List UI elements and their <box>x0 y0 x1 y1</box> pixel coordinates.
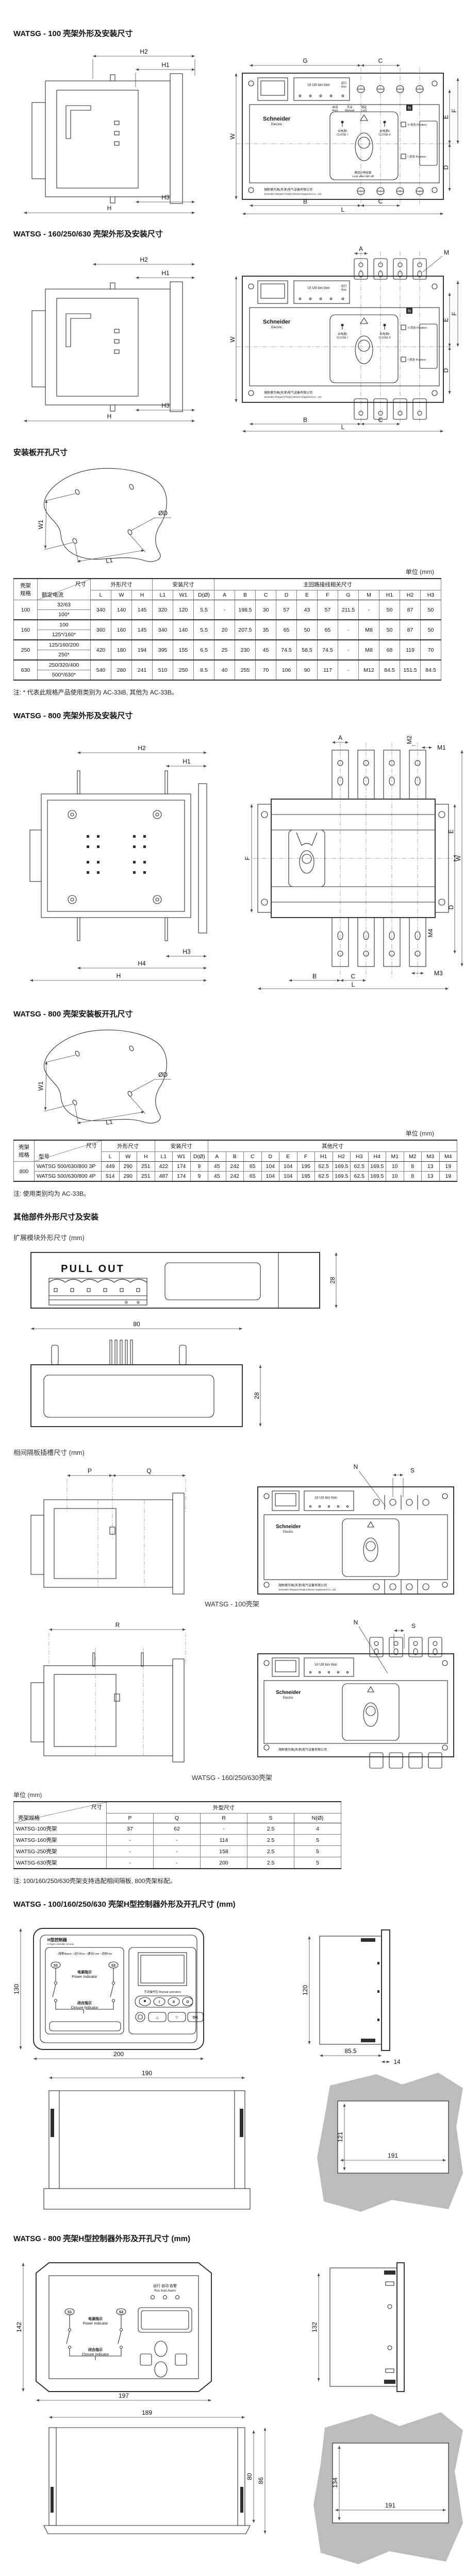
dim-b: B <box>303 198 307 205</box>
table-cell: 420 <box>91 640 111 660</box>
separator-side-view: P Q <box>31 1467 186 1594</box>
company-name-en: Schneider Wingoal (Tianjin) Electric Equ… <box>278 1588 336 1591</box>
table-cell: 9 <box>190 1162 208 1172</box>
table-header-cell: 其他尺寸 <box>208 1140 457 1152</box>
table-cell: M12 <box>359 660 379 680</box>
table-cell: 65 <box>244 1162 262 1172</box>
table-cell: 140 <box>173 620 194 640</box>
top-terminals <box>357 86 423 93</box>
table-cell: 50 <box>379 600 400 620</box>
dim-c-bottom: C <box>378 198 383 205</box>
closure-indicator-cn: 闭合指示 <box>77 2001 92 2005</box>
dim-c-top: C <box>378 57 383 64</box>
dim-86: 86 <box>257 2477 264 2484</box>
table-cell: - <box>338 660 359 680</box>
section-title-watsg800-plate: WATSG - 800 壳架安装板开孔尺寸 <box>13 1008 464 1019</box>
table-header-cell: C <box>256 590 276 600</box>
table-cell: 62.5 <box>315 1162 333 1172</box>
rated-current-cell: 32/63 <box>38 600 91 610</box>
dim-28: 28 <box>329 1277 336 1284</box>
dim-w1: W1 <box>37 1081 44 1091</box>
table-header-cell: D(Ø) <box>194 590 214 600</box>
caption-watsg160-frame: WATSG - 160/250/630壳架 <box>0 1772 464 1782</box>
table-cell: 43 <box>297 600 318 620</box>
diag-top-label: 尺寸 <box>91 1803 102 1811</box>
power-indicator-cn: 电源指示 <box>77 1970 92 1974</box>
table-cell: 242 <box>226 1172 244 1182</box>
table-cell: 45 <box>208 1162 226 1172</box>
top-busbars <box>332 750 426 799</box>
dim-h3: H3 <box>161 402 170 409</box>
subsection-expansion-module: 扩展模块外形尺寸 (mm) <box>13 1232 464 1242</box>
table-frame-800-dimensions: 壳架 规格尺寸型号外形尺寸安装尺寸其他尺寸LWHL1W1D(Ø)ABCDEFH1… <box>13 1140 457 1182</box>
table-cell: 5 <box>294 1857 341 1869</box>
table-header-cell: C <box>244 1152 262 1162</box>
dim-h2: H2 <box>140 256 148 263</box>
button-II: II <box>173 2001 175 2004</box>
dim-h2: H2 <box>138 744 146 752</box>
panel-cutout: 134 191 <box>313 2412 463 2564</box>
table-header-cell: L1 <box>153 590 173 600</box>
company-name-en: Schneider Wingoal (Tianjin) Electric Equ… <box>264 396 322 398</box>
table-cell: - <box>107 1857 154 1869</box>
dim-m: M <box>444 249 449 256</box>
dim-d: D <box>448 905 455 909</box>
table-cell: 5 <box>294 1846 341 1857</box>
table-header-cell: A <box>214 590 235 600</box>
led-panel-labels: UI UII Ion IIon <box>307 286 329 290</box>
separator-front-view: N S UI UII Ion IIon Schneider Electric 施… <box>258 1619 454 1768</box>
table-cell: 19 <box>439 1172 457 1182</box>
controller-title-cn: H型控制器 <box>47 1937 68 1942</box>
rated-current-cell: 100 <box>38 620 91 630</box>
table-header-cell: D(Ø) <box>190 1152 208 1162</box>
button-O: O <box>186 2001 189 2004</box>
dim-190: 190 <box>142 2070 152 2077</box>
diag-top-label: 尺寸 <box>86 1142 97 1149</box>
figure-h-controller-small: H型控制器 H Type Controller ACxxxx ○报警Alarm … <box>0 1916 464 2065</box>
controller800-bottom-view: 189 80 86 <box>44 2409 265 2534</box>
power-indicator-en: Power Indicator <box>83 2322 108 2326</box>
table-cell: 169.5 <box>333 1172 351 1182</box>
figure-watsg160-outline: H2 H1 H3 H UI UII Ion IIon 运行 Run <box>0 245 464 433</box>
dim-130: 130 <box>13 1984 20 1994</box>
table-separator-dimensions: 尺寸壳架规格外型尺寸PQRSN(Ø)WATSG-100壳架3762-2.54WA… <box>13 1801 341 1869</box>
table-cell: 6.5 <box>194 640 214 660</box>
table-cell: 8 <box>404 1172 422 1182</box>
table-header-cell: H1 <box>379 590 400 600</box>
brand-logo-sub: Electric <box>271 123 283 126</box>
table-cell: 87 <box>400 620 421 640</box>
table-cell: 211.5 <box>338 600 359 620</box>
dim-l: L <box>341 423 345 431</box>
table-cell: 19 <box>439 1162 457 1172</box>
section-title-watsg800: WATSG - 800 壳架外形及安装尺寸 <box>13 710 464 721</box>
table-cell: 87 <box>400 600 421 620</box>
frame-spec-cell: WATSG-250壳架 <box>14 1846 107 1857</box>
led-panel-labels: UI UII Ion IIon <box>314 1663 337 1667</box>
controller800-side-view: 132 <box>311 2263 404 2392</box>
table-cell: 290 <box>119 1172 137 1182</box>
table-header-cell: L <box>102 1152 120 1162</box>
table-cell: 90 <box>297 660 318 680</box>
s1-label: S1 <box>54 1964 58 1968</box>
table-cell: M8 <box>359 620 379 640</box>
table-cell: 360 <box>91 620 111 640</box>
dim-80: 80 <box>133 1320 140 1328</box>
table-cell: 25 <box>214 640 235 660</box>
s2-label: S2 <box>111 1964 116 1968</box>
table-cell: 30 <box>256 600 276 620</box>
table-cell: 5.5 <box>194 620 214 640</box>
table-header-cell: S <box>247 1814 294 1823</box>
leds800-cn: 运行 自动 告警 <box>153 2283 177 2288</box>
table-cell: 120 <box>173 600 194 620</box>
dim-189: 189 <box>142 2409 152 2416</box>
table-cell: 449 <box>102 1162 120 1172</box>
table-cell: 395 <box>153 640 173 660</box>
table-cell: 5 <box>294 1835 341 1846</box>
dim-h: H <box>107 205 112 212</box>
table-cell: 2.5 <box>247 1823 294 1835</box>
table-cell: 280 <box>111 660 132 680</box>
table-cell: 117 <box>318 660 338 680</box>
table-cell: 195 <box>297 1162 315 1172</box>
rated-current-cell: 500*/630* <box>38 670 91 681</box>
table-header-cell: 壳架 规格 <box>14 579 38 600</box>
dim-d: D <box>442 368 450 372</box>
auto-label-cn: 自动 <box>332 105 338 109</box>
button-up-icon: △ <box>156 2016 159 2020</box>
dim-85-5: 85.5 <box>344 2047 357 2055</box>
table-cell: 230 <box>235 640 256 660</box>
table-header-cell: M3 <box>422 1152 440 1162</box>
table-header-cell: E <box>279 1152 297 1162</box>
table-header-cell: H3 <box>421 590 441 600</box>
dim-191: 191 <box>385 2502 395 2509</box>
dim-h1: H1 <box>161 269 170 277</box>
section-title-h-controller-small: WATSG - 100/160/250/630 壳架H型控制器外形及开孔尺寸 (… <box>13 1899 464 1909</box>
table-header-cell: F <box>318 590 338 600</box>
nav-buttons <box>140 2341 187 2377</box>
table-cell: 106 <box>276 660 297 680</box>
lock-note-en: Lock after I&II off <box>352 175 374 178</box>
company-name-cn: 施耐德万高(天津)电气设备有限公司 <box>264 188 312 192</box>
table-header-cell: M1 <box>386 1152 404 1162</box>
frame-spec-cell: WATSG-160壳架 <box>14 1835 107 1846</box>
warning-triangle-icon <box>360 318 368 324</box>
table-header-cell: N(Ø) <box>294 1814 341 1823</box>
dim-e: E <box>442 318 450 322</box>
frame-spec-cell: 630 <box>14 660 38 680</box>
table-cell: 155 <box>173 640 194 660</box>
table-cell: 242 <box>226 1162 244 1172</box>
frame-spec-cell: 250 <box>14 640 38 660</box>
table-cell: 320 <box>153 600 173 620</box>
dim-191: 191 <box>388 2152 398 2159</box>
note-ac33b: 注: 使用类别均为 AC-33B。 <box>13 1189 464 1198</box>
table-cell: 251 <box>137 1162 155 1172</box>
figure-expansion-module-top: 80 28 <box>0 1318 361 1437</box>
close2-label-en: CLOSE II <box>378 336 391 340</box>
dim-h1: H1 <box>183 758 191 765</box>
dim-s: S <box>410 1467 415 1474</box>
table-cell: 50 <box>421 600 441 620</box>
dim-200: 200 <box>113 2050 124 2058</box>
manual-label-cn: 手动 <box>346 105 353 109</box>
brand-logo-sub: Electric <box>283 1531 293 1534</box>
table-cell: 104 <box>261 1162 279 1172</box>
close1-label-en: CLOSE I <box>337 336 348 340</box>
dim-l: L <box>352 981 355 988</box>
table-cell: 10 <box>386 1172 404 1182</box>
run-label-cn: 运行 <box>341 81 347 85</box>
table-cell: - <box>107 1835 154 1846</box>
dim-m4: M4 <box>427 928 434 937</box>
neutral-pole-marker: N <box>408 106 411 111</box>
table-cell: 180 <box>111 640 132 660</box>
table-cell: - <box>214 600 235 620</box>
diagonal-header-cell: 尺寸型号 <box>35 1140 102 1162</box>
table-cell: - <box>338 620 359 640</box>
watsg800-front-view: A M2 M1 F E W D M4 M3 B C L <box>244 734 462 989</box>
table-header-cell: 外型尺寸 <box>107 1802 341 1814</box>
table-header-cell: A <box>208 1152 226 1162</box>
watsg800-side-view: H2 H1 H3 H4 H <box>30 744 207 980</box>
connector-cluster <box>87 835 146 874</box>
table-cell: 62.5 <box>351 1162 369 1172</box>
diag-top-label: 尺寸 <box>75 580 86 588</box>
table-header-cell: M <box>359 590 379 600</box>
table-header-cell: W <box>111 590 132 600</box>
table-cell: 169.5 <box>368 1172 386 1182</box>
led-panel-labels: UI UII Ion IIon <box>314 1496 337 1500</box>
table-cell: 20 <box>214 620 235 640</box>
table-cell: - <box>107 1846 154 1857</box>
table-cell: 50 <box>379 620 400 640</box>
table-header-cell: H2 <box>400 590 421 600</box>
s2-label: S2 <box>119 2311 124 2314</box>
dim-a: A <box>338 734 342 741</box>
controller-front-view: H型控制器 H Type Controller ACxxxx ○报警Alarm … <box>13 1928 204 2059</box>
caption-watsg100-frame: WATSG - 100壳架 <box>0 1599 464 1608</box>
table-header-cell: G <box>338 590 359 600</box>
dim-m2: M2 <box>406 735 413 744</box>
model-cell: WATSG 500/630/800 4P <box>35 1172 102 1182</box>
table-header-cell: E <box>297 590 318 600</box>
table-header-cell: Q <box>154 1814 201 1823</box>
table-cell: - <box>201 1823 247 1835</box>
figure-h-controller-small-cutout: 190 121 191 <box>0 2065 464 2219</box>
separator-front-view: N S UI UII Ion IIon Schneider Electric 施… <box>258 1463 454 1594</box>
pull-out-label: PULL OUT <box>61 1263 125 1275</box>
table-cell: - <box>154 1835 201 1846</box>
dim-w: W <box>229 133 236 140</box>
dim-h: H <box>107 413 112 420</box>
dim-14: 14 <box>393 2058 401 2065</box>
dim-m3: M3 <box>434 970 443 977</box>
table-cell: 9 <box>190 1172 208 1182</box>
table-header-cell: H2 <box>333 1152 351 1162</box>
mounting-plate-blob: W1 L1 ØD <box>37 1030 171 1126</box>
table-cell: 487 <box>155 1172 173 1182</box>
diag-bottom-label: 额定电流 <box>42 591 63 599</box>
figure-separator-watsg160: R N S UI UII Ion IIon Schneider Electric <box>0 1617 464 1771</box>
table-cell: - <box>154 1857 201 1869</box>
bottom-terminal-lugs <box>370 1753 442 1768</box>
table-cell: 174 <box>173 1162 191 1172</box>
dim-121: 121 <box>337 2132 344 2142</box>
figure-expansion-module-front: PULL OUT 28 <box>0 1246 361 1313</box>
table-cell: 45 <box>256 640 276 660</box>
closure-indicator-cn: 闭合指示 <box>88 2347 103 2352</box>
table-header-cell: B <box>235 590 256 600</box>
table-cell: 340 <box>91 600 111 620</box>
table-cell: 340 <box>153 620 173 640</box>
table-header-cell: H1 <box>315 1152 333 1162</box>
table-cell: 169.5 <box>368 1162 386 1172</box>
dim-c: C <box>351 973 356 980</box>
table-cell: 104 <box>261 1172 279 1182</box>
table-cell: 2.5 <box>247 1857 294 1869</box>
led-panel-labels: UI UII Ion IIon <box>307 83 329 87</box>
diagonal-header-cell: 尺寸额定电流 <box>38 579 91 600</box>
table-cell: 169.5 <box>333 1162 351 1172</box>
table-header-cell: 主回路接线相关尺寸 <box>214 579 441 590</box>
table-cell: 50 <box>421 620 441 640</box>
table-cell: - <box>359 600 379 620</box>
separator-side-view: R <box>31 1621 186 1762</box>
brand-logo: Schneider <box>263 116 291 122</box>
table-cell: 104 <box>279 1172 297 1182</box>
table-cell: 8.5 <box>194 660 214 680</box>
dim-142: 142 <box>15 2322 23 2332</box>
s1-label: S1 <box>68 2311 72 2314</box>
panel-cutout: 121 191 <box>317 2073 463 2212</box>
table-cell: 5.5 <box>194 600 214 620</box>
table-header-cell: B <box>226 1152 244 1162</box>
brand-logo: Schneider <box>276 1690 301 1696</box>
dim-80: 80 <box>246 2473 253 2480</box>
table-header-cell: L1 <box>155 1152 173 1162</box>
warning-triangle-icon <box>360 115 368 121</box>
controller-bottom-view: 190 <box>44 2070 250 2209</box>
position2-label: II 状态 Position <box>408 326 427 330</box>
module-body <box>31 1340 242 1427</box>
rated-current-cell: 125/160/200 <box>38 640 91 650</box>
dim-e: E <box>448 829 455 834</box>
controller-side-view: 120 85.5 14 <box>302 1930 401 2065</box>
diag-bottom-label: 壳架规格 <box>18 1814 40 1822</box>
table-cell: 13 <box>422 1162 440 1172</box>
table-cell: 45 <box>208 1172 226 1182</box>
table-header-cell: M4 <box>439 1152 457 1162</box>
table-cell: 37 <box>107 1823 154 1835</box>
table-cell: 62.5 <box>315 1172 333 1182</box>
button-down-icon: ▽ <box>175 2016 178 2020</box>
position1-label: I 状态 Position <box>408 358 426 362</box>
table-cell: 65 <box>318 620 338 640</box>
run-label-cn: 运行 <box>341 284 347 288</box>
dim-28: 28 <box>253 1392 260 1399</box>
table-cell: 145 <box>132 620 153 640</box>
figure-watsg800-outline: H2 H1 H3 H4 H <box>0 727 464 995</box>
table-cell: - <box>154 1846 201 1857</box>
section-title-h-controller-800: WATSG - 800 壳架H型控制器外形及开孔尺寸 (mm) <box>13 2233 464 2244</box>
table-cell: 160 <box>111 620 132 640</box>
company-name-cn: 施耐德万高(天津)电气设备有限公司 <box>278 1748 327 1752</box>
dim-l: L <box>341 206 345 213</box>
table-header-cell: H <box>137 1152 155 1162</box>
table-header-cell: P <box>107 1814 154 1823</box>
bottom-busbars <box>332 918 426 967</box>
table-cell: 57 <box>276 600 297 620</box>
table-cell: 250 <box>173 660 194 680</box>
dim-r: R <box>115 1621 120 1629</box>
dim-120: 120 <box>302 1985 309 1995</box>
brand-logo-sub: Electric <box>283 1697 293 1700</box>
figure-h-controller-800: 运行 自动 告警 Run Auto Alarm S1 S2 电源指示 Power… <box>0 2250 464 2404</box>
table-cell: 57 <box>318 600 338 620</box>
dim-h2: H2 <box>140 48 148 55</box>
dim-m1: M1 <box>437 744 446 751</box>
terminal-block <box>49 1278 147 1305</box>
button-I: I <box>159 2001 160 2004</box>
power-indicator-en: Power Indicator <box>72 1975 97 1979</box>
table-cell: M8 <box>359 640 379 660</box>
dim-l1: L1 <box>105 556 113 564</box>
close1-label-cn: 合电源I <box>338 129 347 133</box>
dim-132: 132 <box>311 2322 318 2332</box>
table-cell: 140 <box>111 600 132 620</box>
diagonal-header-cell: 尺寸壳架规格 <box>14 1802 107 1823</box>
model-cell: WATSG 500/630/800 3P <box>35 1162 102 1172</box>
dim-f: F <box>451 109 458 112</box>
table-cell: 70 <box>421 640 441 660</box>
dim-w: W <box>455 855 462 861</box>
manual-zone-label: 手动操作区 Manual operation <box>144 1990 181 1994</box>
rated-current-cell: 250/320/400 <box>38 660 91 670</box>
figure-mounting-plate-holes: W1 L1 ØD <box>0 464 464 564</box>
dim-a: A <box>359 245 363 252</box>
frame-spec-cell: WATSG-630壳架 <box>14 1857 107 1869</box>
frame-spec-cell: WATSG-100壳架 <box>14 1823 107 1835</box>
table-frame-100-630-dimensions: 壳架 规格尺寸额定电流外形尺寸安装尺寸主回路接线相关尺寸LWHL1W1D(Ø)A… <box>13 578 441 681</box>
table-cell: 540 <box>91 660 111 680</box>
note-separator: 注: 100/160/250/630壳架支持选配相间隔板, 800壳架标配。 <box>13 1876 464 1885</box>
table-cell: 4 <box>294 1823 341 1835</box>
table-cell: 151.5 <box>400 660 421 680</box>
dim-h: H <box>117 972 121 979</box>
figure-h-controller-800-cutout: 189 80 86 134 191 <box>0 2404 464 2574</box>
table-cell: 8 <box>404 1162 422 1172</box>
lock-note-cn: 摘双分再挂锁 <box>354 171 372 175</box>
table-cell: 200 <box>201 1857 247 1869</box>
table-cell: 145 <box>132 600 153 620</box>
table-cell: 62 <box>154 1823 201 1835</box>
watsg160-front-view: UI UII Ion IIon 运行 Run Schneider Electri… <box>229 245 458 431</box>
table-cell: 74.5 <box>276 640 297 660</box>
table-cell: 422 <box>155 1162 173 1172</box>
bottom-terminals <box>357 188 423 195</box>
section-title-watsg160: WATSG - 160/250/630 壳架外形及安装尺寸 <box>13 228 464 239</box>
table-header-cell: R <box>201 1814 247 1823</box>
table-cell: 70 <box>256 660 276 680</box>
table-cell: 104 <box>279 1162 297 1172</box>
table-cell: 84.5 <box>421 660 441 680</box>
table-cell: 514 <box>102 1172 120 1182</box>
note-ac33ib: 注: * 代表此规格产品使用类别为 AC-33iB, 其他为 AC-33B。 <box>13 688 464 697</box>
